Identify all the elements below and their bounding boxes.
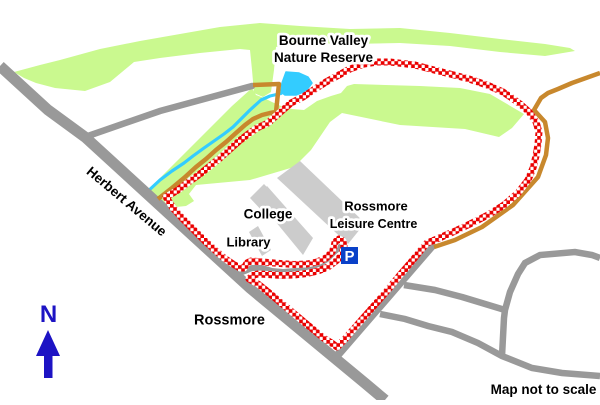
svg-text:P: P	[344, 248, 354, 265]
svg-text:Rossmore: Rossmore	[344, 199, 408, 214]
svg-text:Bourne Valley: Bourne Valley	[279, 33, 369, 48]
svg-text:Leisure Centre: Leisure Centre	[330, 217, 418, 231]
svg-text:Nature Reserve: Nature Reserve	[274, 50, 374, 65]
svg-text:Map not to scale: Map not to scale	[491, 382, 597, 397]
svg-text:Library: Library	[226, 235, 271, 250]
svg-text:N: N	[40, 301, 57, 328]
svg-text:Rossmore: Rossmore	[194, 313, 265, 329]
svg-text:College: College	[244, 207, 293, 222]
